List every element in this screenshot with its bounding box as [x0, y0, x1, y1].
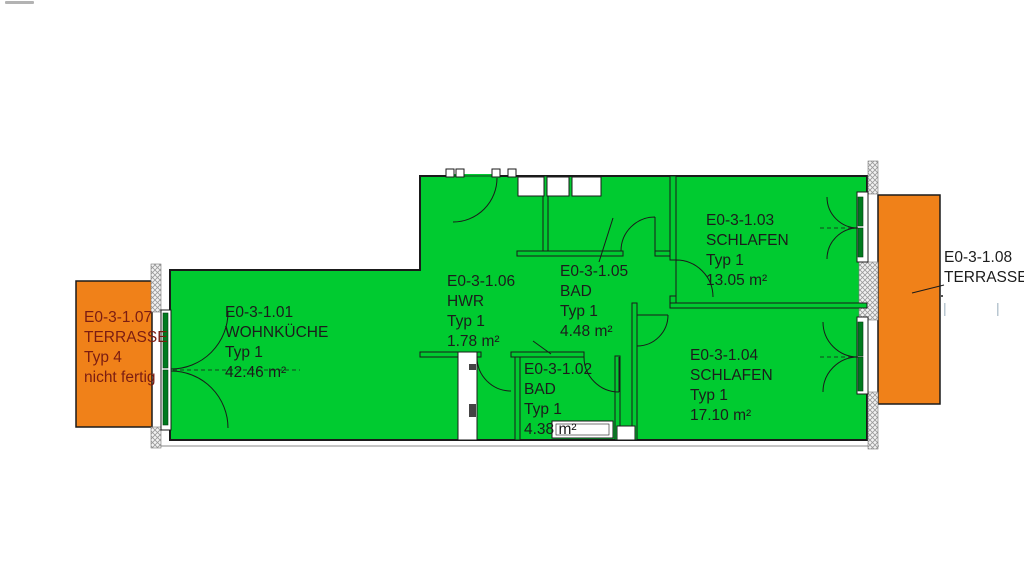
room-name: WOHNKÜCHE — [225, 323, 328, 343]
room-id: E0-3-1.08 — [944, 248, 1024, 268]
room-id: E0-3-1.07 — [84, 308, 168, 328]
room-area: 13.05 m² — [706, 271, 789, 291]
utility-wall — [458, 352, 477, 440]
room-typ: Typ 1 — [447, 312, 515, 332]
room-area: 1.78 m² — [447, 332, 515, 352]
wardrobe-fixtures — [518, 177, 601, 196]
room-name: SCHLAFEN — [706, 231, 789, 251]
room-typ: Typ 4 — [84, 348, 168, 368]
room-area: 4.48 m² — [560, 322, 628, 342]
room-typ: Typ 1 — [225, 343, 328, 363]
room-label-hwr: E0-3-1.06 HWR Typ 1 1.78 m² — [447, 272, 515, 352]
room-label-bad-102: E0-3-1.02 BAD Typ 1 4.38 m² — [524, 360, 592, 440]
room-name: BAD — [524, 380, 592, 400]
floor-plan-page: E0-3-1.01 WOHNKÜCHE Typ 1 42.46 m² E0-3-… — [0, 0, 1024, 576]
room-label-bad-105: E0-3-1.05 BAD Typ 1 4.48 m² — [560, 262, 628, 342]
room-label-schlafen-103: E0-3-1.03 SCHLAFEN Typ 1 13.05 m² — [706, 211, 789, 291]
room-id: E0-3-1.04 — [690, 346, 773, 366]
terrace-right — [878, 195, 940, 404]
shaft — [617, 426, 635, 440]
room-id: E0-3-1.02 — [524, 360, 592, 380]
room-id: E0-3-1.05 — [560, 262, 628, 282]
room-name: TERRASSE — [944, 268, 1024, 288]
room-name: HWR — [447, 292, 515, 312]
room-name: SCHLAFEN — [690, 366, 773, 386]
room-label-terrasse-107: E0-3-1.07 TERRASSE Typ 4 nicht fertig — [84, 308, 168, 388]
faint-ticks — [941, 295, 999, 316]
room-typ: Typ 1 — [560, 302, 628, 322]
room-id: E0-3-1.06 — [447, 272, 515, 292]
room-typ: Typ 1 — [706, 251, 789, 271]
room-typ: Typ 1 — [690, 386, 773, 406]
room-area: 42.46 m² — [225, 363, 328, 383]
room-area: 4.38 m² — [524, 420, 592, 440]
room-note: nicht fertig — [84, 368, 168, 388]
room-id: E0-3-1.01 — [225, 303, 328, 323]
room-label-terrasse-108: E0-3-1.08 TERRASSE — [944, 248, 1024, 288]
room-area: 17.10 m² — [690, 406, 773, 426]
room-name: BAD — [560, 282, 628, 302]
room-label-wohnkueche: E0-3-1.01 WOHNKÜCHE Typ 1 42.46 m² — [225, 303, 328, 383]
room-typ: Typ 1 — [524, 400, 592, 420]
room-id: E0-3-1.03 — [706, 211, 789, 231]
room-label-schlafen-104: E0-3-1.04 SCHLAFEN Typ 1 17.10 m² — [690, 346, 773, 426]
room-name: TERRASSE — [84, 328, 168, 348]
